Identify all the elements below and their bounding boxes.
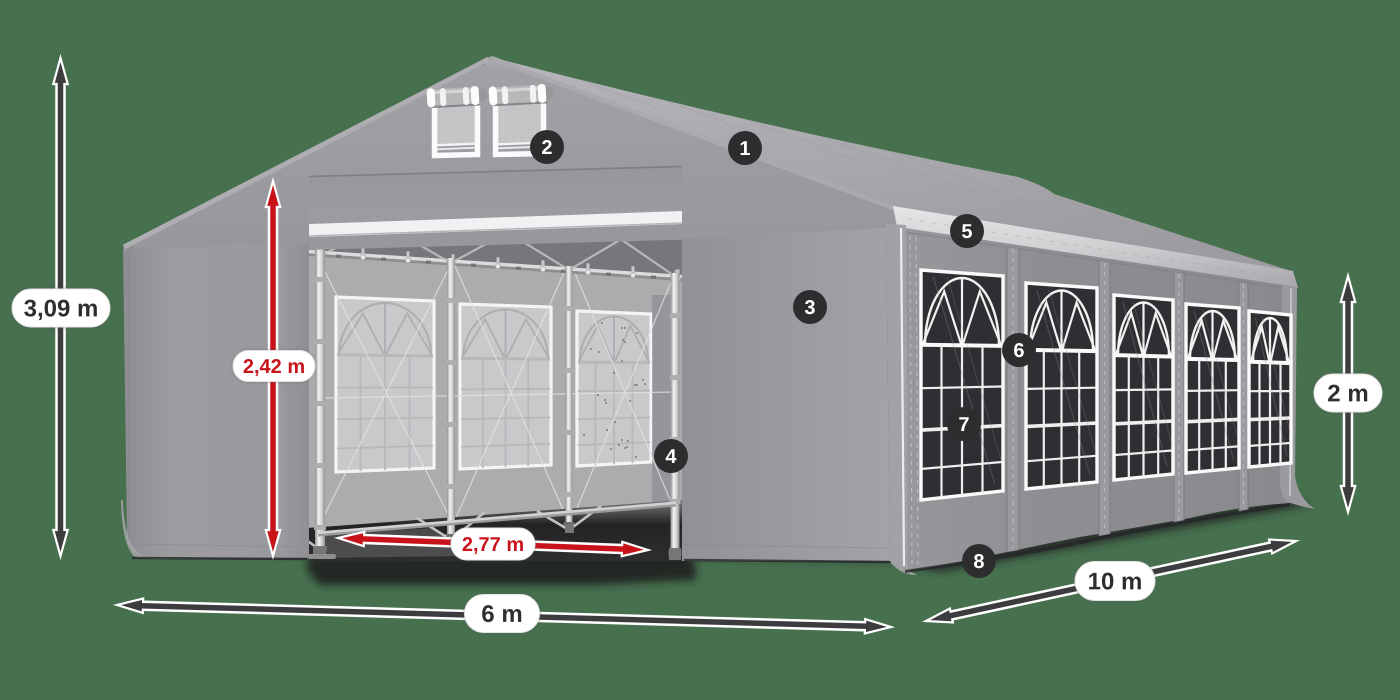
svg-text:2: 2 (541, 137, 552, 159)
svg-text:2,42 m: 2,42 m (243, 356, 305, 378)
svg-text:7: 7 (958, 414, 969, 436)
svg-text:3: 3 (804, 297, 815, 319)
svg-text:8: 8 (973, 551, 984, 573)
svg-text:1: 1 (739, 138, 750, 160)
svg-text:5: 5 (961, 221, 972, 243)
svg-text:2,77 m: 2,77 m (462, 534, 524, 556)
svg-text:2 m: 2 m (1327, 380, 1368, 407)
svg-text:3,09 m: 3,09 m (24, 295, 99, 322)
svg-text:10 m: 10 m (1088, 568, 1143, 595)
svg-text:6: 6 (1013, 340, 1024, 362)
svg-text:4: 4 (665, 446, 677, 468)
svg-text:6 m: 6 m (481, 601, 522, 628)
